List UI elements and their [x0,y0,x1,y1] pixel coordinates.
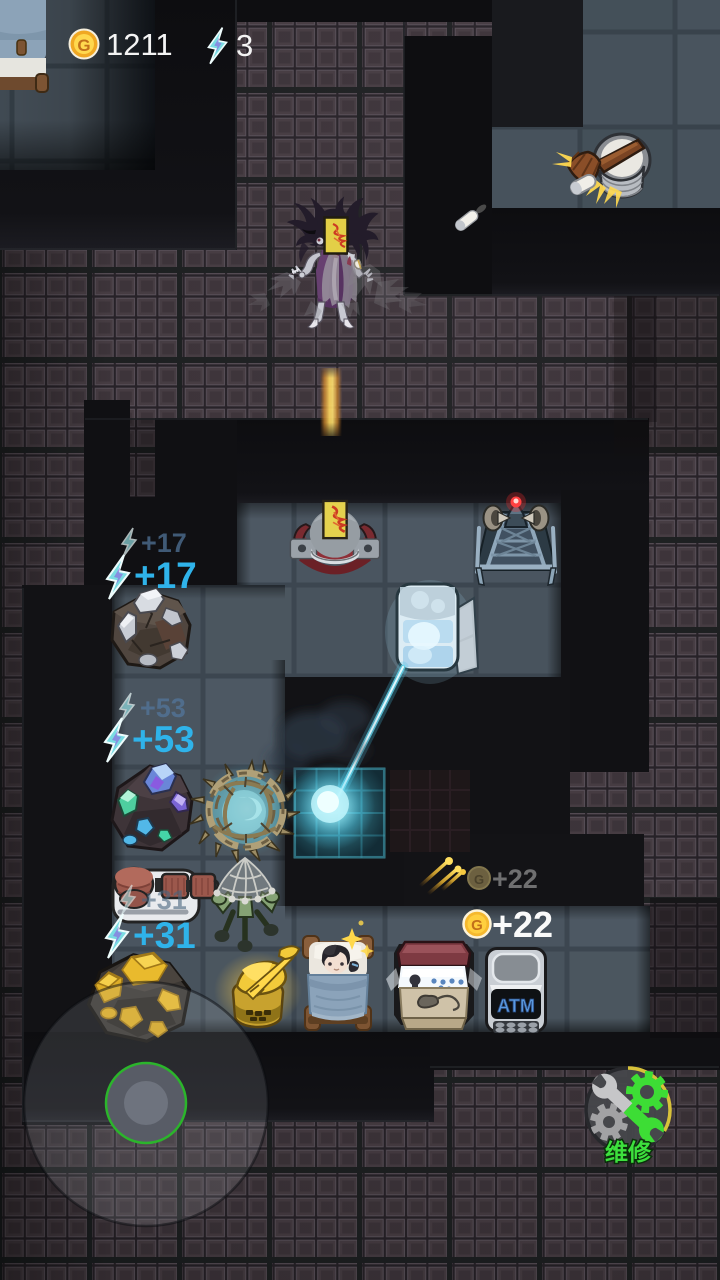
svg-text:+17: +17 [134,555,197,596]
svg-text:+31: +31 [133,915,196,956]
svg-text:3: 3 [236,28,253,63]
svg-text:1211: 1211 [106,27,173,62]
svg-text:+17: +17 [141,528,187,558]
svg-text:+22: +22 [492,864,538,894]
svg-text:ATM: ATM [497,996,535,1016]
svg-text:G: G [77,36,90,55]
svg-text:G: G [474,872,484,887]
svg-text:维修: 维修 [605,1139,652,1165]
svg-text:+53: +53 [132,719,195,760]
svg-text:+22: +22 [492,904,553,945]
svg-text:+31: +31 [141,885,187,915]
svg-text:G: G [471,917,483,934]
